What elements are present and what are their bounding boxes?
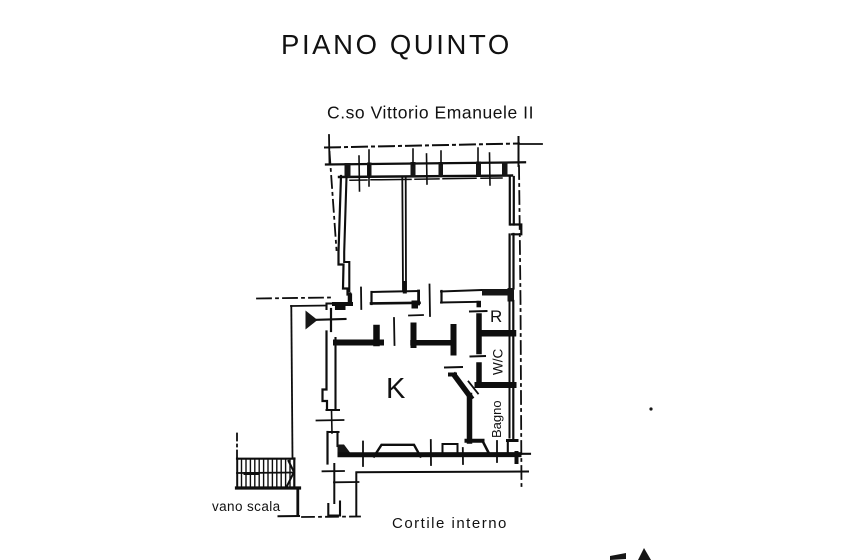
svg-text:K: K xyxy=(386,373,406,405)
svg-text:vano scala: vano scala xyxy=(212,499,281,514)
svg-text:C.so Vittorio Emanuele II: C.so Vittorio Emanuele II xyxy=(327,103,534,123)
svg-text:R: R xyxy=(490,307,502,326)
svg-text:Bagno: Bagno xyxy=(489,400,504,438)
svg-text:Cortile interno: Cortile interno xyxy=(392,515,508,532)
svg-text:PIANO QUINTO: PIANO QUINTO xyxy=(281,29,512,60)
svg-text:W/C: W/C xyxy=(491,349,506,375)
